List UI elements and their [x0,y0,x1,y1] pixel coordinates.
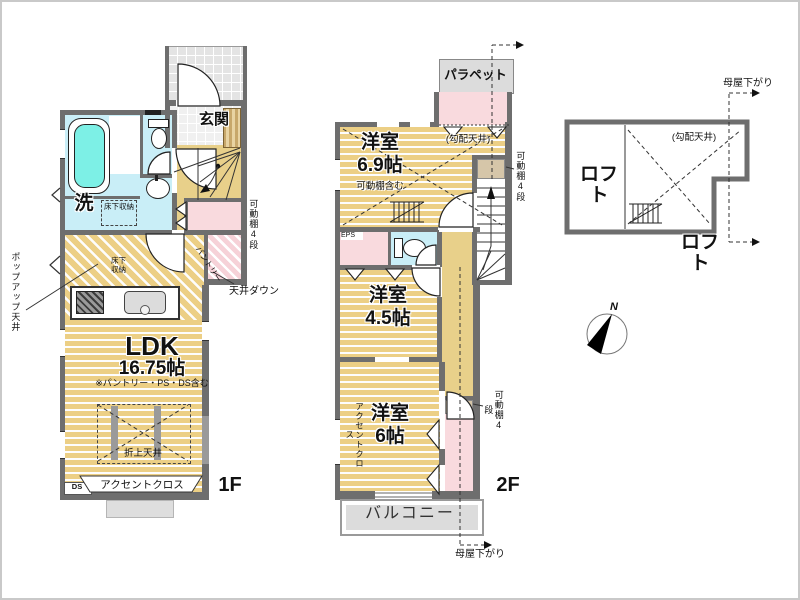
2f-roof-terrace [439,92,512,125]
2f-room2-size: 4.5帖 [358,309,418,330]
wall [442,396,480,400]
1f-kitchen-underfloor-label: 床下収納 [110,257,127,274]
1f-sink-drain-icon [140,305,150,315]
2f-accent-cloth-label: アクセントクロス [344,398,364,472]
wall [437,297,442,357]
small-window [145,110,161,115]
wall [409,357,442,362]
1f-bath-washing-area [109,116,140,174]
wall [172,192,177,234]
1f-ceiling-down-label: 天井ダウン [222,286,286,298]
wall [473,282,480,495]
2f-floor-label: 2F [486,474,530,496]
wall [439,362,445,420]
1f-ldk-size: 16.75帖 [100,359,204,380]
wall [165,46,169,106]
2f-toilet-bowl-icon [403,239,426,257]
compass-north-label: N [604,301,624,314]
1f-stove-icon [76,291,104,314]
compass-icon [587,314,627,354]
2f-movable-shelf-top-label: 可動棚4段 [515,150,525,202]
2f-sloped-ceiling-label: (勾配天井) [432,135,504,146]
1f-ds-label: DS [64,483,90,492]
1f-entrance-porch [168,46,244,106]
window [60,330,65,356]
wall [437,230,442,267]
wall [184,198,188,234]
wall [172,110,177,149]
1f-toilet-bowl-icon [151,128,167,149]
2f-room1-label: 洋室 [350,133,410,154]
2f-room3-label: 洋室 [360,404,420,425]
2f-closet-shelf [445,400,473,414]
1f-bathtub-water [74,124,105,188]
wall [202,285,209,500]
1f-closet [186,202,241,232]
wall [335,190,340,420]
window [410,122,430,127]
window [60,130,65,158]
wall [388,232,391,265]
wall [432,491,480,499]
wall [505,122,512,282]
1f-wash-label: 洗 [68,194,100,215]
2f-movable-shelf-bottom-label: 可動棚4段 [483,386,504,434]
window [60,432,65,458]
2f-eps-label: EPS [341,232,363,240]
2f-room3-size: 6帖 [360,427,420,448]
1f-movable-shelf-label: 可動棚4段 [248,198,258,250]
wall [434,92,439,125]
wall [335,122,340,160]
wall [507,92,512,125]
1f-toilet-tank-icon [148,119,169,128]
wall [472,227,477,282]
1f-accent-cloth-label: アクセントクロス [94,479,190,491]
wall [60,230,172,235]
1f-ldk-label: LDK [100,332,204,361]
floor-plan-page: 玄関 洗 床下収納 床下収納 LDK 16.75帖 ※パントリー・PS・DS含む… [0,0,800,600]
wall [335,491,375,499]
wall [184,198,241,202]
2f-hall-floor [442,232,475,400]
wall [472,155,512,159]
window [375,357,409,362]
wall [439,449,445,465]
1f-sink-icon [146,178,170,199]
wall [140,114,143,176]
1f-ldk-note: ※パントリー・PS・DS含む [57,378,247,388]
balcony-sliding-door [375,491,432,499]
2f-room1-size: 6.9帖 [350,156,410,177]
2f-room3-closet [445,414,473,495]
1f-coffered-label: 折上天井 [97,449,189,460]
1f-underfloor-storage-label: 床下収納 [101,200,137,226]
1f-floor-label: 1F [208,474,252,496]
loft-sloped-ceiling-label: (勾配天井) [658,133,730,144]
loft-roof-down-label: 母屋下がり [716,78,780,90]
loft-plan-label: ロフト [672,233,728,275]
wall [243,46,247,106]
wall [184,230,247,235]
window [335,160,340,190]
sliding-door [202,416,209,464]
1f-popup-ceiling-label: ポップアップ天井 [10,246,20,338]
loft-room-label: ロフト [574,165,624,207]
2f-parapet-label: パラペット [439,68,512,82]
1f-faucet-icon [155,175,158,181]
window [377,122,399,127]
2f-balcony-label: バルコニー [350,505,470,523]
wall [335,265,412,270]
2f-room1-note: 可動棚含む [342,182,418,193]
2f-stair-shelf [477,159,505,179]
2f-stairs-floor [477,179,505,282]
window [335,420,340,464]
2f-room2-label: 洋室 [358,286,418,307]
2f-toilet-tank-icon [394,238,403,258]
wall [472,159,477,193]
arrowheads [484,41,760,549]
1f-entrance-step [106,500,174,518]
1f-entrance-label: 玄関 [186,112,242,129]
wall [335,357,375,362]
2f-roof-down-label: 母屋下がり [448,549,512,561]
